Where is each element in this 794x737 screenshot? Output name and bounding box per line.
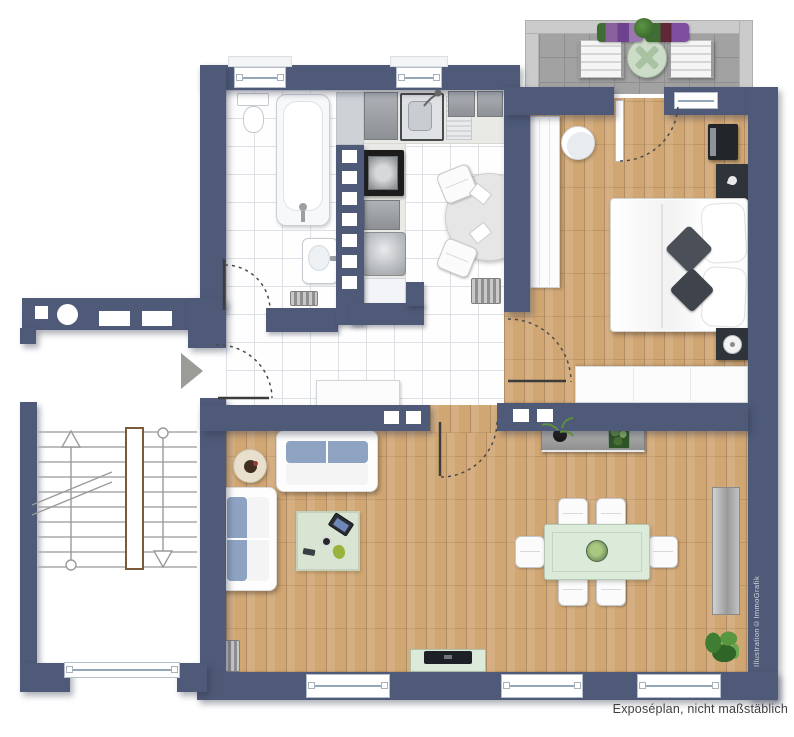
stair-treads: [38, 432, 197, 567]
bedroom-door-arc: [508, 319, 571, 382]
plan-caption: Exposéplan, nicht maßstäblich: [480, 702, 788, 718]
stair-divider: [126, 428, 143, 569]
floor-plan: Exposéplan, nicht maßstäblich Illustrati…: [0, 0, 794, 737]
sideboard-plant-sprigs: [542, 418, 573, 436]
entrance-door-arc: [216, 345, 272, 398]
bathroom-door-arc: [225, 265, 270, 310]
balcony-door-arc: [620, 103, 678, 161]
living-door-arc: [441, 421, 497, 477]
illustrator-watermark: Illustration©ImmoGrafik: [752, 572, 761, 667]
stair-break-lines: [32, 472, 112, 515]
plan-line-overlay: [0, 0, 794, 737]
door-leaf-lines: [218, 259, 566, 476]
entrance-arrow-icon: [181, 353, 203, 389]
door-swing-arcs: [216, 103, 678, 477]
stair-direction-arrows: [62, 428, 172, 570]
kitchen-faucet-icon: [424, 91, 441, 107]
